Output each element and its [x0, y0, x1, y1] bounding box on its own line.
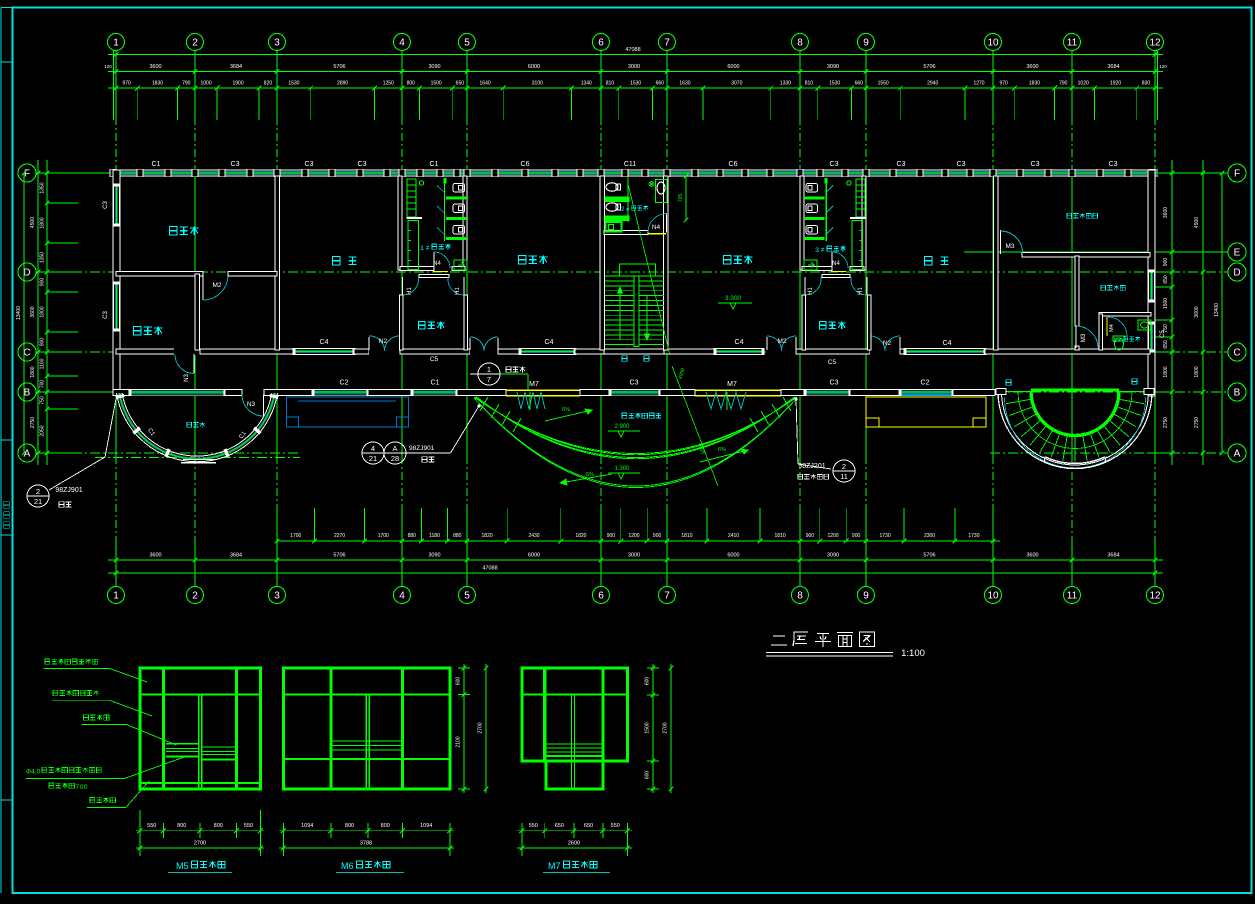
svg-text:1820: 1820 [482, 533, 493, 539]
svg-text:900: 900 [607, 533, 616, 539]
svg-text:C3: C3 [305, 161, 314, 168]
svg-text:3: 3 [274, 38, 280, 49]
svg-text:800: 800 [345, 823, 354, 829]
svg-text:3684: 3684 [1107, 553, 1119, 559]
svg-text:3600: 3600 [149, 553, 161, 559]
svg-text:1200: 1200 [628, 533, 639, 539]
svg-text:2700: 2700 [663, 722, 669, 733]
svg-text:C4: C4 [735, 339, 744, 346]
svg-text:10: 10 [987, 38, 999, 49]
svg-text:98ZJ901: 98ZJ901 [55, 487, 82, 494]
svg-text:1530: 1530 [630, 81, 641, 87]
svg-text:2050: 2050 [40, 425, 46, 436]
svg-text:13400: 13400 [16, 306, 22, 320]
svg-text:C5: C5 [828, 359, 837, 366]
svg-text:1800: 1800 [40, 217, 46, 228]
svg-text:N2: N2 [883, 340, 892, 347]
svg-text:H1: H1 [455, 287, 461, 295]
svg-text:1180: 1180 [429, 533, 440, 539]
svg-text:1:100: 1:100 [901, 648, 925, 659]
svg-text:820: 820 [264, 81, 273, 87]
svg-text:5: 5 [464, 38, 470, 49]
svg-text:3684: 3684 [230, 64, 242, 70]
svg-text:3600: 3600 [1026, 553, 1038, 559]
svg-text:4500: 4500 [1194, 217, 1200, 228]
svg-text:8: 8 [797, 38, 803, 49]
svg-text:M2: M2 [777, 338, 786, 345]
svg-text:120: 120 [1159, 64, 1167, 69]
svg-text:1094: 1094 [301, 823, 313, 829]
svg-text:4: 4 [399, 591, 405, 602]
svg-text:810: 810 [805, 81, 814, 87]
svg-text:3.300: 3.300 [725, 295, 742, 302]
svg-text:800: 800 [407, 81, 416, 87]
svg-text:4: 4 [399, 38, 405, 49]
svg-text:5706: 5706 [923, 553, 935, 559]
svg-text:3000: 3000 [628, 553, 640, 559]
svg-text:M7: M7 [727, 381, 737, 388]
svg-text:F: F [24, 169, 30, 180]
svg-text:3600: 3600 [149, 64, 161, 70]
svg-text:3788: 3788 [360, 841, 372, 847]
svg-text:1000: 1000 [201, 81, 212, 87]
svg-text:13400: 13400 [1214, 303, 1220, 317]
svg-text:3684: 3684 [1107, 64, 1119, 70]
svg-text:700: 700 [40, 380, 46, 389]
svg-text:2410: 2410 [728, 533, 739, 539]
svg-text:1550: 1550 [878, 81, 889, 87]
svg-text:1800: 1800 [1194, 366, 1200, 377]
svg-text:6: 6 [598, 38, 604, 49]
svg-text:1900: 1900 [232, 81, 243, 87]
svg-text:C: C [1233, 348, 1240, 359]
svg-text:3: 3 [815, 247, 819, 254]
svg-text:3090: 3090 [827, 553, 839, 559]
svg-text:M6: M6 [341, 861, 354, 871]
svg-text:900: 900 [40, 278, 46, 287]
svg-text:21: 21 [369, 454, 377, 463]
svg-text:2: 2 [842, 462, 846, 471]
svg-text:5706: 5706 [923, 64, 935, 70]
svg-text:800: 800 [381, 823, 390, 829]
svg-text:1800: 1800 [40, 306, 46, 317]
svg-text:12: 12 [1149, 38, 1161, 49]
svg-text:1094: 1094 [420, 823, 432, 829]
svg-text:1: 1 [420, 245, 424, 252]
svg-text:3090: 3090 [428, 553, 440, 559]
svg-text:650: 650 [1163, 275, 1169, 284]
svg-text:C3: C3 [231, 161, 240, 168]
svg-text:900: 900 [40, 338, 46, 347]
svg-text:B: B [24, 388, 31, 399]
svg-text:1800: 1800 [30, 366, 36, 377]
svg-text:650: 650 [1163, 340, 1169, 349]
svg-text:9: 9 [863, 38, 869, 49]
svg-text:750: 750 [40, 396, 46, 405]
svg-text:11: 11 [1067, 38, 1078, 49]
svg-text:550: 550 [147, 823, 156, 829]
svg-text:N4: N4 [433, 261, 441, 267]
svg-text:1700: 1700 [290, 533, 301, 539]
svg-text:550: 550 [529, 823, 538, 829]
svg-text:830: 830 [1142, 81, 1151, 87]
svg-text:5706: 5706 [333, 64, 345, 70]
svg-text:1810: 1810 [774, 533, 785, 539]
svg-text:7: 7 [487, 375, 491, 384]
svg-text:5: 5 [464, 591, 470, 602]
svg-text:880: 880 [453, 533, 462, 539]
svg-text:1100: 1100 [40, 358, 46, 369]
svg-text:21: 21 [34, 497, 42, 506]
svg-text:2750: 2750 [1163, 417, 1169, 428]
svg-text:11: 11 [1067, 591, 1078, 602]
svg-text:N3: N3 [184, 374, 190, 382]
svg-text:2.900: 2.900 [614, 424, 630, 430]
svg-text:C3: C3 [358, 161, 367, 168]
svg-text:2940: 2940 [927, 81, 938, 87]
svg-text:660: 660 [656, 81, 665, 87]
svg-text:M5: M5 [176, 861, 189, 871]
svg-text:H1: H1 [808, 287, 814, 295]
svg-text:47088: 47088 [625, 47, 640, 53]
svg-text:C1: C1 [431, 380, 440, 387]
svg-text:900: 900 [1163, 258, 1169, 267]
svg-text:650: 650 [584, 823, 593, 829]
svg-text:6%: 6% [718, 447, 726, 453]
svg-text:C1: C1 [430, 161, 439, 168]
svg-text:1500: 1500 [1163, 298, 1169, 309]
svg-text:900: 900 [653, 533, 662, 539]
svg-text:2430: 2430 [528, 533, 539, 539]
svg-text:1640: 1640 [480, 81, 491, 87]
svg-text:C11: C11 [624, 161, 636, 168]
svg-text:600: 600 [645, 677, 651, 686]
svg-text:C3: C3 [103, 201, 109, 209]
svg-text:1830: 1830 [152, 81, 163, 87]
svg-text:6%: 6% [586, 472, 594, 478]
svg-text:C2: C2 [921, 380, 930, 387]
svg-text:C5: C5 [1160, 330, 1166, 338]
svg-text:C3: C3 [830, 161, 839, 168]
svg-text:C4: C4 [545, 339, 554, 346]
svg-text:12: 12 [1149, 591, 1161, 602]
svg-text:N2: N2 [379, 338, 388, 345]
svg-text:1: 1 [487, 365, 491, 374]
svg-text:550: 550 [611, 823, 620, 829]
svg-text:3000: 3000 [628, 64, 640, 70]
svg-text:C3: C3 [897, 161, 906, 168]
svg-text:790: 790 [182, 81, 191, 87]
svg-text:3600: 3600 [1163, 207, 1169, 218]
svg-text:2300: 2300 [924, 533, 935, 539]
svg-text:3600: 3600 [30, 306, 36, 317]
svg-text:810: 810 [606, 81, 615, 87]
svg-text:C: C [23, 348, 30, 359]
svg-text:N4: N4 [652, 224, 661, 231]
svg-text:F: F [1234, 169, 1240, 180]
svg-text:A: A [392, 444, 397, 453]
svg-text:98ZJ901: 98ZJ901 [409, 445, 435, 452]
svg-text:7: 7 [664, 38, 670, 49]
svg-text:E: E [1234, 248, 1241, 259]
svg-text:28: 28 [391, 454, 399, 463]
svg-text:1020: 1020 [1078, 81, 1089, 87]
svg-text:C2: C2 [340, 380, 349, 387]
svg-text:7: 7 [664, 591, 670, 602]
svg-text:M7: M7 [529, 381, 539, 388]
svg-text:≠: ≠ [426, 245, 430, 252]
svg-text:C3: C3 [830, 380, 839, 387]
svg-text:D: D [23, 268, 30, 279]
svg-text:0: 0 [84, 784, 88, 791]
svg-text:2: 2 [192, 591, 198, 602]
svg-text:D: D [1233, 268, 1240, 279]
svg-text:1330: 1330 [780, 81, 791, 87]
svg-text:1200: 1200 [827, 533, 838, 539]
svg-text:6: 6 [598, 591, 604, 602]
svg-text:1830: 1830 [1029, 81, 1040, 87]
svg-text:900: 900 [852, 533, 861, 539]
svg-text:4500: 4500 [30, 217, 36, 228]
svg-text:1730: 1730 [879, 533, 890, 539]
svg-text:800: 800 [177, 823, 186, 829]
svg-text:N3: N3 [247, 401, 256, 408]
svg-text:2750: 2750 [1194, 417, 1200, 428]
svg-text:C6: C6 [729, 161, 738, 168]
svg-text:M7: M7 [548, 861, 561, 871]
svg-text:C6: C6 [521, 161, 530, 168]
svg-text:C4: C4 [943, 340, 952, 347]
svg-text:705: 705 [678, 194, 684, 203]
svg-text:970: 970 [999, 81, 1008, 87]
svg-text:1.300: 1.300 [614, 466, 630, 472]
svg-text:3090: 3090 [428, 64, 440, 70]
svg-text:6000: 6000 [727, 64, 739, 70]
svg-text:B: B [1234, 388, 1241, 399]
svg-text:900: 900 [806, 533, 815, 539]
svg-text:6%: 6% [562, 407, 570, 413]
svg-text:2750: 2750 [30, 417, 36, 428]
svg-text:1350: 1350 [40, 182, 46, 193]
svg-text:120: 120 [104, 64, 112, 69]
svg-text:C1: C1 [152, 161, 161, 168]
svg-text:2: 2 [192, 38, 198, 49]
svg-text:3600: 3600 [1026, 64, 1038, 70]
svg-text:H1: H1 [858, 287, 864, 295]
svg-text:650: 650 [555, 823, 564, 829]
svg-text:1700: 1700 [378, 533, 389, 539]
svg-text:N4: N4 [832, 261, 840, 267]
svg-text:650: 650 [456, 81, 465, 87]
svg-text:C4: C4 [320, 339, 329, 346]
svg-text:10: 10 [987, 591, 999, 602]
svg-text:1340: 1340 [581, 81, 592, 87]
svg-text:M3: M3 [1005, 243, 1014, 250]
svg-text:Φ4.0: Φ4.0 [26, 768, 41, 775]
svg-text:2100: 2100 [456, 736, 462, 747]
svg-text:11: 11 [840, 472, 848, 481]
svg-text:A: A [1234, 449, 1241, 460]
svg-text:1530: 1530 [288, 81, 299, 87]
svg-text:3090: 3090 [827, 64, 839, 70]
svg-text:2270: 2270 [334, 533, 345, 539]
svg-text:C3: C3 [103, 311, 109, 319]
svg-text:M4: M4 [1109, 324, 1115, 332]
svg-text:9: 9 [863, 591, 869, 602]
svg-text:1530: 1530 [829, 81, 840, 87]
svg-text:1350: 1350 [40, 252, 46, 263]
svg-text:1500: 1500 [645, 722, 651, 733]
svg-text:H1: H1 [407, 287, 413, 295]
svg-text:550: 550 [244, 823, 253, 829]
svg-text:8: 8 [797, 591, 803, 602]
svg-text:2700: 2700 [194, 841, 206, 847]
svg-text:C3: C3 [1109, 161, 1118, 168]
svg-text:A: A [24, 449, 31, 460]
svg-text:47088: 47088 [482, 566, 497, 572]
svg-text:970: 970 [122, 81, 131, 87]
svg-text:1: 1 [113, 38, 119, 49]
svg-text:1270: 1270 [973, 81, 984, 87]
svg-text:3: 3 [274, 591, 280, 602]
svg-text:≠: ≠ [821, 247, 825, 254]
svg-text:2600: 2600 [568, 841, 580, 847]
svg-text:3100: 3100 [532, 81, 543, 87]
svg-text:3070: 3070 [731, 81, 742, 87]
svg-text:6000: 6000 [727, 553, 739, 559]
svg-text:C3: C3 [1031, 161, 1040, 168]
svg-text:4: 4 [371, 444, 375, 453]
svg-text:C5: C5 [430, 356, 439, 363]
svg-text:1920: 1920 [1110, 81, 1121, 87]
svg-text:3600: 3600 [1194, 306, 1200, 317]
svg-text:1500: 1500 [431, 81, 442, 87]
svg-text:M2: M2 [212, 282, 221, 289]
svg-text:1820: 1820 [575, 533, 586, 539]
svg-text:800: 800 [214, 823, 223, 829]
svg-text:C3: C3 [630, 380, 639, 387]
svg-text:3684: 3684 [230, 553, 242, 559]
svg-text:600: 600 [645, 771, 651, 780]
svg-text:5706: 5706 [333, 553, 345, 559]
svg-text:6000: 6000 [528, 553, 540, 559]
svg-text:1250: 1250 [383, 81, 394, 87]
svg-text:600: 600 [456, 677, 462, 686]
svg-text:880: 880 [408, 533, 417, 539]
svg-text:790: 790 [1059, 81, 1068, 87]
svg-text:1810: 1810 [681, 533, 692, 539]
svg-text:M3: M3 [1081, 333, 1087, 342]
svg-text:2890: 2890 [337, 81, 348, 87]
svg-text:1630: 1630 [679, 81, 690, 87]
svg-text:2700: 2700 [478, 722, 484, 733]
svg-text:660: 660 [855, 81, 864, 87]
svg-text:2: 2 [36, 487, 40, 496]
svg-text:C3: C3 [957, 161, 966, 168]
svg-text:1800: 1800 [1163, 366, 1169, 377]
svg-text:6000: 6000 [528, 64, 540, 70]
svg-text:1730: 1730 [968, 533, 979, 539]
svg-text:1: 1 [113, 591, 119, 602]
